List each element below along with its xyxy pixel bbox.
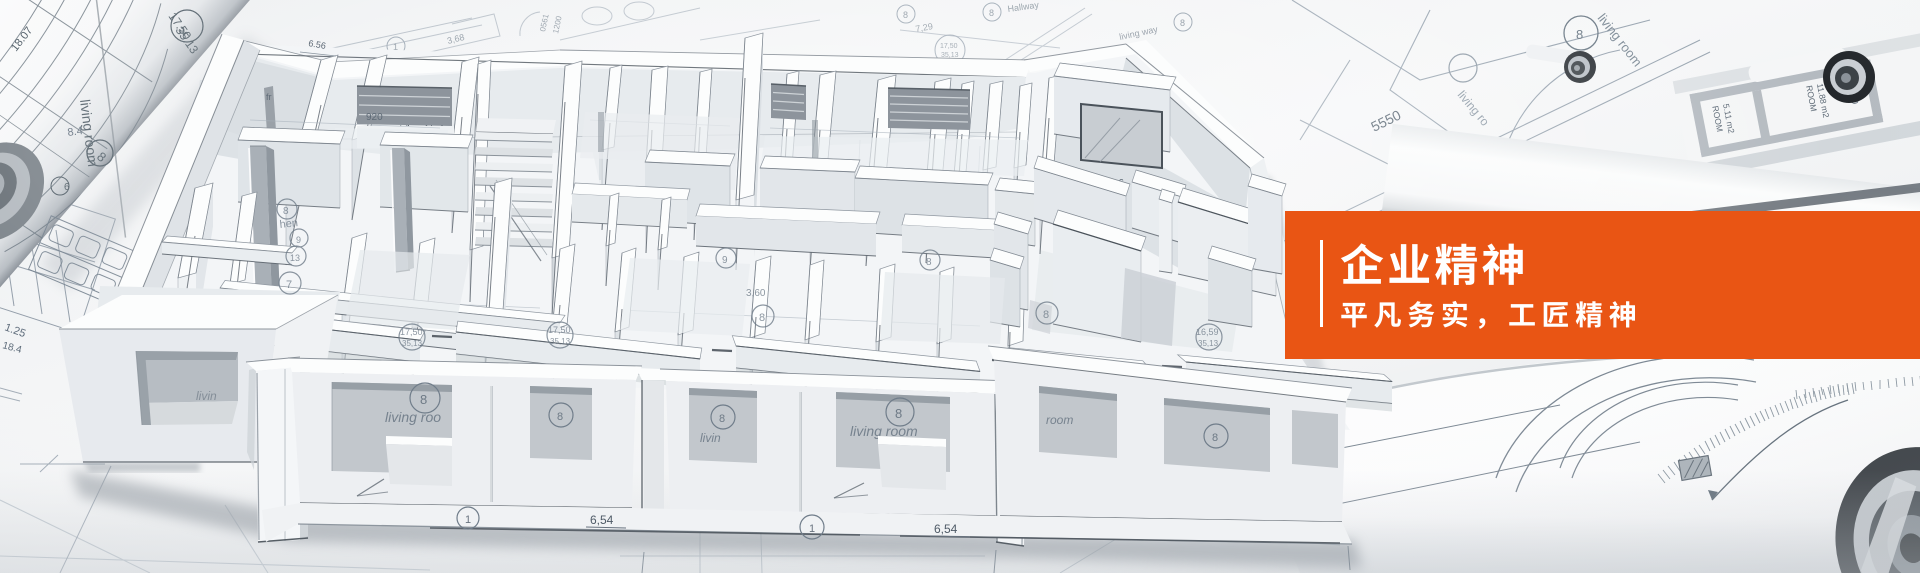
svg-text:fr: fr	[266, 92, 272, 102]
svg-text:35,13: 35,13	[1198, 339, 1219, 348]
svg-text:8: 8	[1212, 432, 1218, 444]
svg-text:livin: livin	[196, 389, 217, 403]
svg-text:livin: livin	[700, 431, 721, 445]
svg-text:35,13: 35,13	[550, 337, 571, 346]
svg-text:13: 13	[290, 253, 300, 263]
svg-text:7: 7	[286, 279, 292, 291]
svg-text:1: 1	[809, 523, 815, 535]
svg-text:17,50: 17,50	[400, 327, 423, 337]
svg-text:hen: hen	[279, 217, 299, 231]
svg-text:8: 8	[420, 392, 427, 407]
svg-text:9: 9	[296, 235, 301, 245]
svg-text:17,50: 17,50	[548, 325, 571, 335]
svg-text:16,59: 16,59	[1196, 327, 1219, 337]
svg-text:8: 8	[1043, 309, 1049, 321]
svg-text:8: 8	[926, 257, 932, 268]
svg-text:35,13: 35,13	[402, 339, 423, 348]
svg-text:3,60: 3,60	[746, 288, 766, 299]
svg-text:8: 8	[895, 406, 902, 421]
svg-text:920: 920	[366, 112, 383, 123]
svg-text:8: 8	[557, 411, 563, 423]
svg-text:1: 1	[465, 514, 471, 526]
svg-text:6,54: 6,54	[590, 513, 614, 527]
svg-text:living roo: living roo	[385, 409, 441, 425]
svg-text:8: 8	[283, 206, 289, 217]
svg-text:room: room	[1046, 413, 1073, 427]
svg-text:8: 8	[719, 413, 725, 425]
svg-text:8: 8	[759, 312, 765, 324]
svg-text:9: 9	[722, 255, 728, 266]
svg-text:6,54: 6,54	[934, 522, 958, 536]
